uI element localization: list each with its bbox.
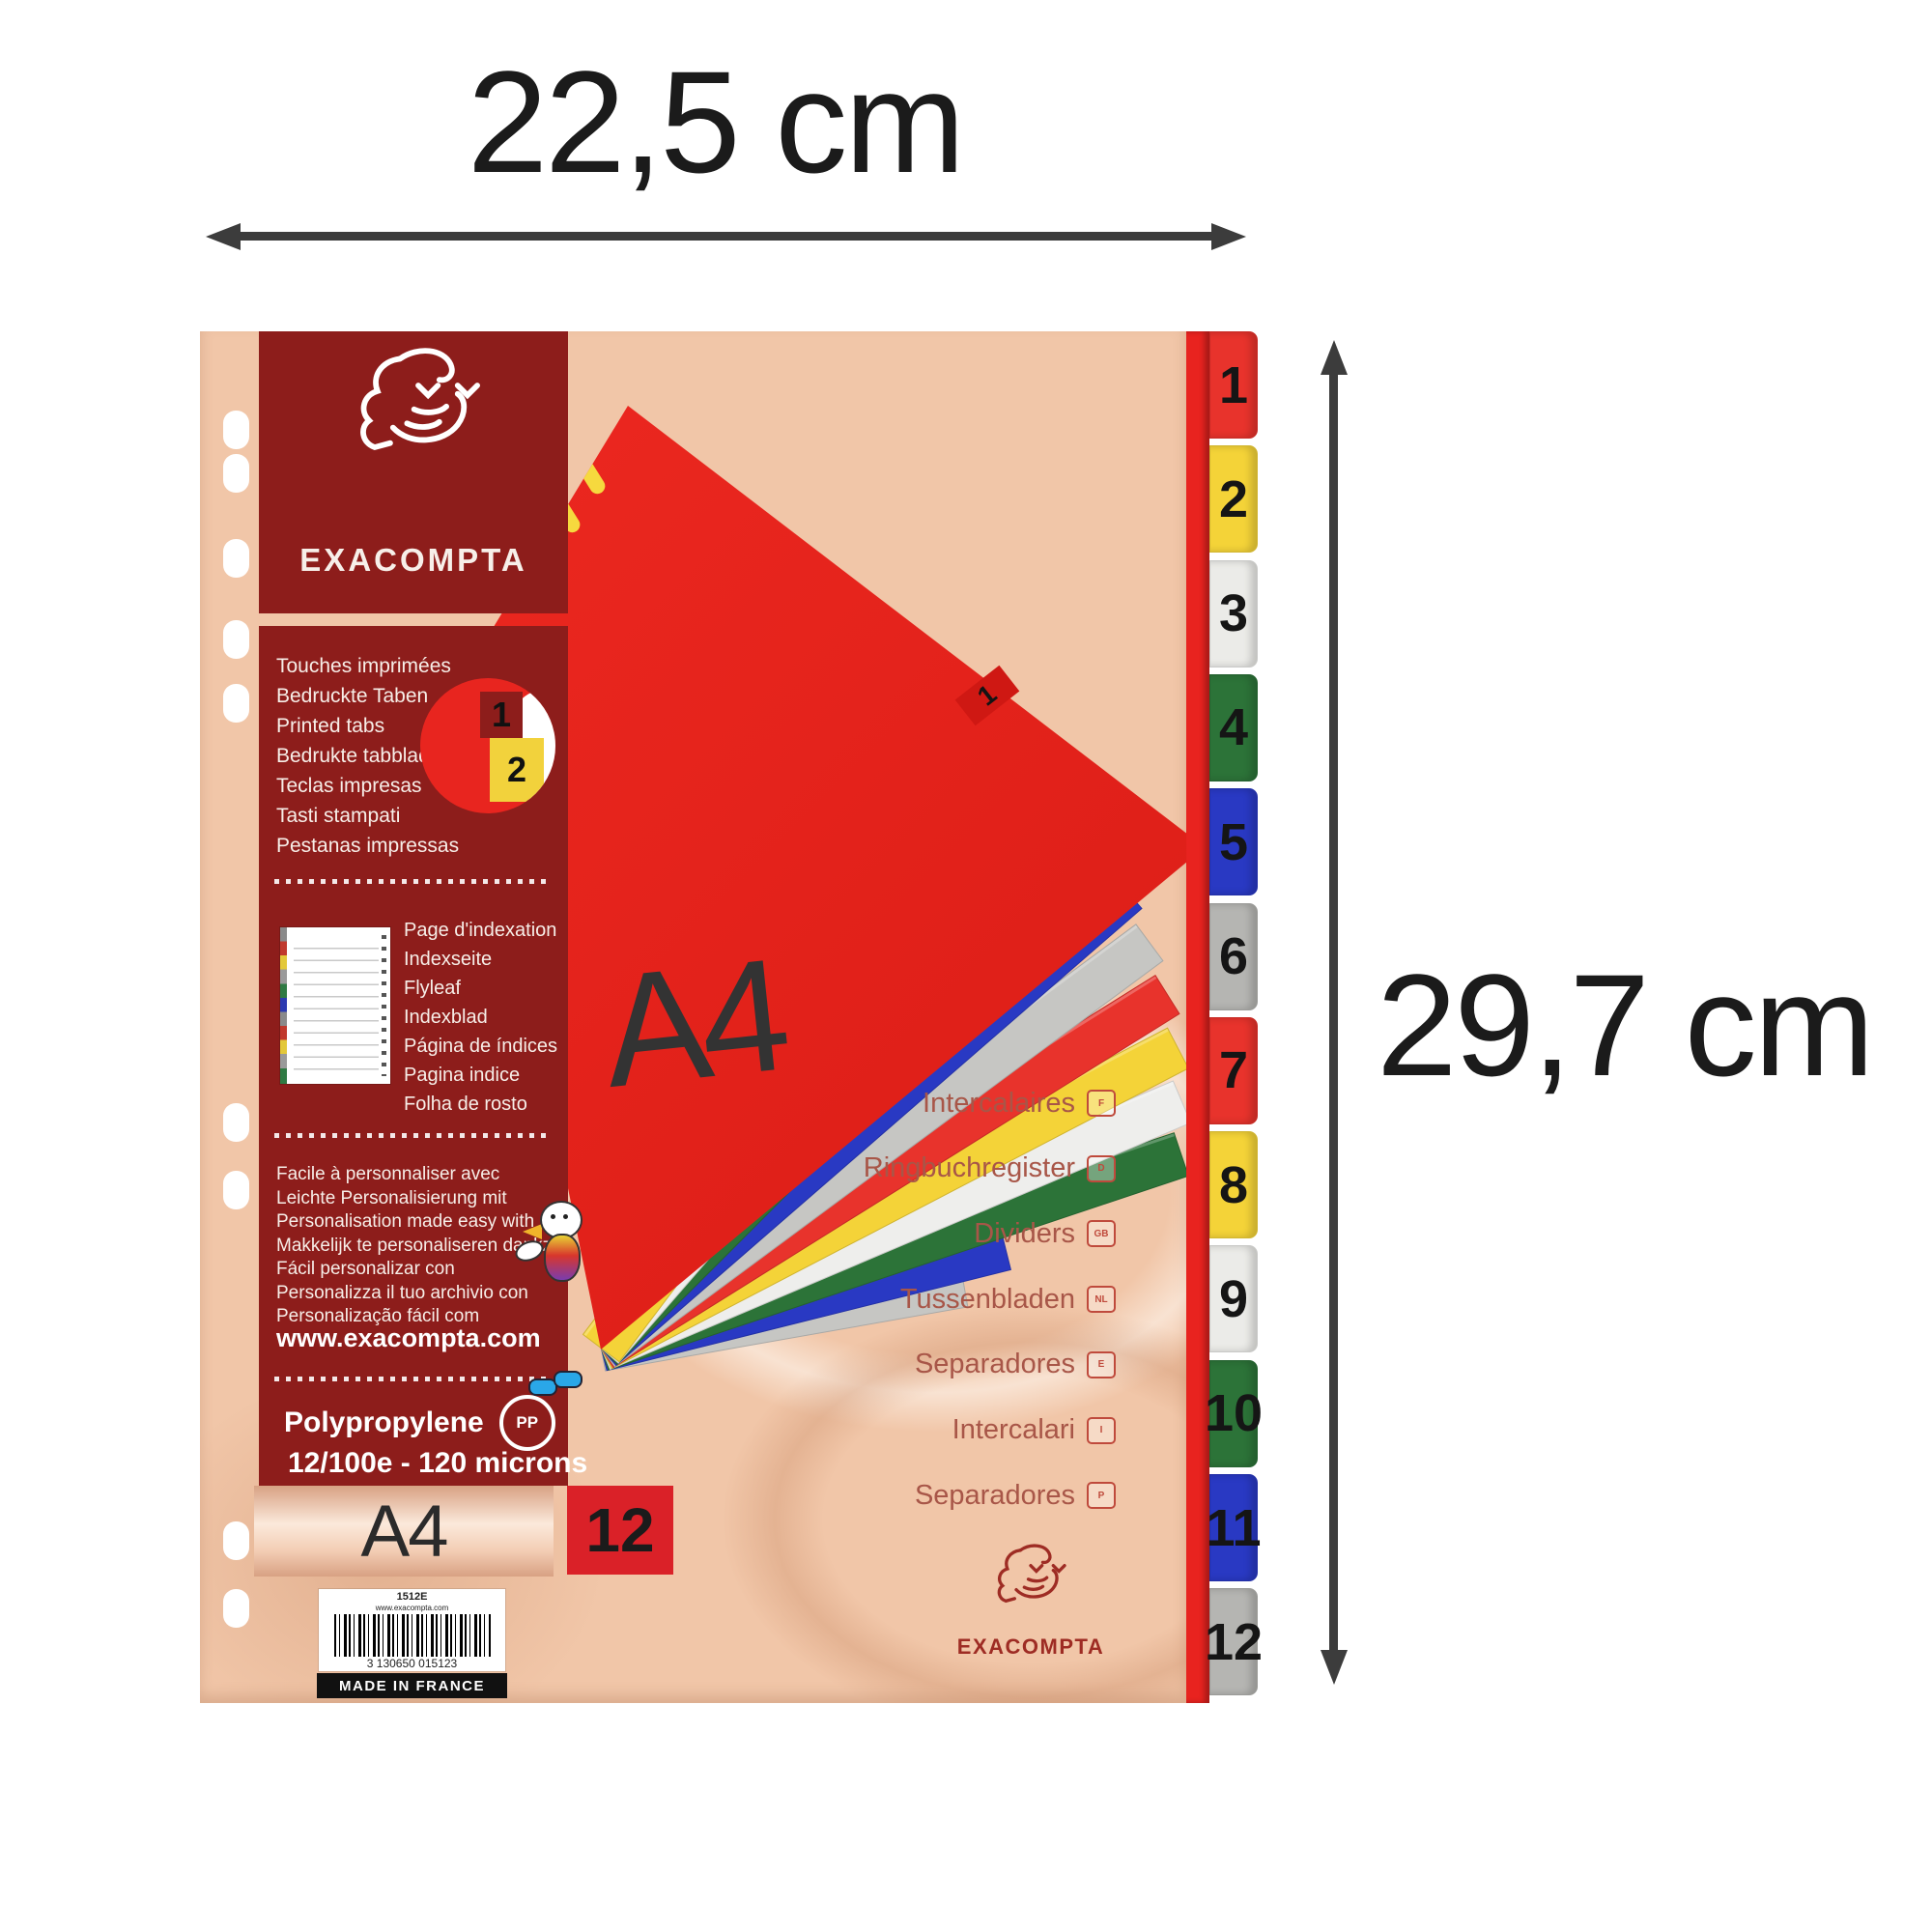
tab-strip: 123456789101112 bbox=[1209, 331, 1256, 1703]
country-flag-icon: GB bbox=[1087, 1220, 1116, 1247]
barcode-icon bbox=[334, 1614, 491, 1657]
printed-tabs-illustration: 1 2 bbox=[420, 678, 555, 813]
product-reference: 1512E bbox=[319, 1589, 505, 1604]
text-line: Folha de rosto bbox=[404, 1090, 557, 1119]
width-dimension-label: 22,5 cm bbox=[328, 39, 1101, 206]
language-label: Intercalaires bbox=[923, 1088, 1075, 1120]
language-label: Separadores bbox=[915, 1480, 1075, 1512]
edge-tab-3: 3 bbox=[1209, 560, 1258, 668]
text-line: Página de índices bbox=[404, 1032, 557, 1061]
text-line: Facile à personnaliser avec bbox=[276, 1163, 560, 1187]
language-label: Dividers bbox=[974, 1218, 1075, 1250]
thickness-label: 12/100e - 120 microns bbox=[288, 1447, 587, 1480]
language-row: IntercalariI bbox=[952, 1414, 1116, 1447]
edge-tab-8: 8 bbox=[1209, 1131, 1258, 1238]
text-line: Indexseite bbox=[404, 945, 557, 974]
format-band: A4 bbox=[254, 1486, 554, 1577]
tab-count-box: 12 bbox=[567, 1486, 673, 1575]
edge-tab-9: 9 bbox=[1209, 1245, 1258, 1352]
brand-name: EXACOMPTA bbox=[259, 542, 568, 579]
language-row: DividersGB bbox=[974, 1217, 1116, 1250]
text-line: Tasti stampati bbox=[276, 801, 459, 831]
edge-tab-7: 7 bbox=[1209, 1017, 1258, 1124]
index-page-list: Page d'indexationIndexseiteFlyleafIndexb… bbox=[404, 916, 557, 1119]
mascot-body bbox=[544, 1234, 581, 1282]
made-in-label: MADE IN FRANCE bbox=[317, 1673, 507, 1698]
index-page-illustration bbox=[280, 927, 390, 1084]
language-label: Separadores bbox=[915, 1349, 1075, 1380]
language-row: IntercalairesF bbox=[923, 1087, 1116, 1120]
divider-set-product: 1098765432 A4 1 123456789101112 bbox=[200, 331, 1256, 1703]
text-line: Page d'indexation bbox=[404, 916, 557, 945]
language-label: Tussenbladen bbox=[900, 1284, 1075, 1316]
text-line: Touches imprimées bbox=[276, 651, 459, 681]
edge-tab-2: 2 bbox=[1209, 445, 1258, 553]
ean-number: 3 130650 015123 bbox=[319, 1657, 505, 1670]
country-flag-icon: I bbox=[1087, 1417, 1116, 1444]
tab-count-label: 12 bbox=[585, 1494, 654, 1566]
country-flag-icon: E bbox=[1087, 1351, 1116, 1378]
language-list: IntercalairesFRingbuchregisterDDividersG… bbox=[780, 1087, 1116, 1541]
edge-tab-12: 12 bbox=[1209, 1588, 1258, 1695]
text-line: Flyleaf bbox=[404, 974, 557, 1003]
cover-format-label: A4 bbox=[595, 923, 789, 1123]
mascot-beak bbox=[523, 1224, 542, 1239]
brand-panel: EXACOMPTA bbox=[259, 331, 568, 613]
arrow-down-icon bbox=[1321, 1650, 1348, 1685]
dotted-separator bbox=[274, 879, 553, 884]
brand-name: EXACOMPTA bbox=[944, 1634, 1118, 1660]
exacompta-logo-icon bbox=[982, 1539, 1079, 1628]
language-row: TussenbladenNL bbox=[900, 1283, 1116, 1316]
country-flag-icon: NL bbox=[1087, 1286, 1116, 1313]
exacompta-logo-icon bbox=[331, 339, 505, 494]
language-label: Intercalari bbox=[952, 1414, 1075, 1446]
edge-tab-5: 5 bbox=[1209, 788, 1258, 895]
text-line: Pestanas impressas bbox=[276, 831, 459, 861]
bottom-brand-logo: EXACOMPTA bbox=[944, 1539, 1118, 1660]
height-dimension-label: 29,7 cm bbox=[1377, 942, 1872, 1109]
edge-tab-6: 6 bbox=[1209, 903, 1258, 1010]
website-url: www.exacompta.com bbox=[276, 1323, 541, 1353]
language-row: RingbuchregisterD bbox=[864, 1152, 1116, 1185]
sample-tab-2: 2 bbox=[490, 738, 544, 802]
country-flag-icon: F bbox=[1087, 1090, 1116, 1117]
dotted-separator bbox=[274, 1377, 553, 1381]
format-label: A4 bbox=[361, 1490, 447, 1574]
arrow-right-icon bbox=[1211, 223, 1246, 250]
edge-tab-1: 1 bbox=[1209, 331, 1258, 439]
language-row: SeparadoresP bbox=[915, 1479, 1116, 1512]
dotted-separator bbox=[274, 1133, 553, 1138]
mascot-shoe bbox=[554, 1371, 582, 1388]
edge-tab-4: 4 bbox=[1209, 674, 1258, 781]
edge-tab-10: 10 bbox=[1209, 1360, 1258, 1467]
barcode-label: 1512E www.exacompta.com 3 130650 015123 bbox=[319, 1589, 505, 1671]
material-label: Polypropylene bbox=[284, 1406, 484, 1439]
country-flag-icon: D bbox=[1087, 1155, 1116, 1182]
edge-tab-11: 11 bbox=[1209, 1474, 1258, 1581]
text-line: Indexblad bbox=[404, 1003, 557, 1032]
product-image: 22,5 cm 29,7 cm 1098765432 bbox=[0, 0, 1932, 1932]
language-row: SeparadoresE bbox=[915, 1349, 1116, 1381]
language-label: Ringbuchregister bbox=[864, 1152, 1075, 1184]
country-flag-icon: P bbox=[1087, 1482, 1116, 1509]
mascot-illustration bbox=[515, 1199, 592, 1440]
mascot-wing bbox=[512, 1236, 546, 1264]
sample-tab-1: 1 bbox=[480, 692, 523, 738]
barcode-url: www.exacompta.com bbox=[319, 1604, 505, 1612]
text-line: Pagina indice bbox=[404, 1061, 557, 1090]
